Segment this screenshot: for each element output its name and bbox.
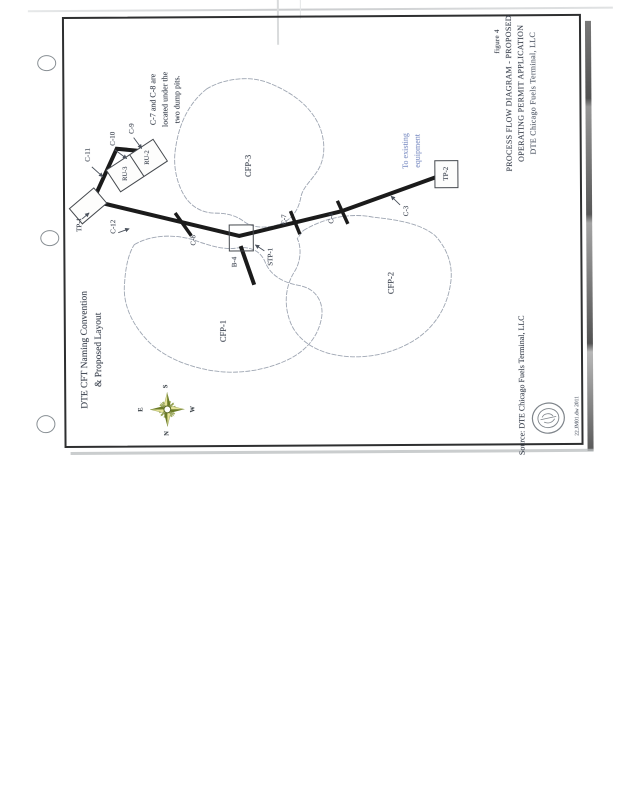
area-cfp3-outline <box>174 78 324 227</box>
pipe-main-c12-c3 <box>97 177 437 237</box>
label-c10: C-10 <box>107 132 119 146</box>
label-ru2: RU-2 <box>142 150 154 165</box>
title-line-3: DTE Chicago Fuels Terminal, LLC <box>527 15 540 171</box>
label-c7: C-7 <box>278 214 290 225</box>
margin-note-text: 22.JM01.dw 2011 <box>574 396 580 436</box>
label-c9: C-9 <box>126 123 138 134</box>
scanned-page: figure 4 PROCESS FLOW DIAGRAM - PROPOSED… <box>0 0 617 800</box>
arrow-stp1 <box>255 245 264 251</box>
source-attribution: Source: DTE Chicago Fuels Terminal, LLC <box>516 315 529 455</box>
note-line-2: located under the <box>159 72 171 127</box>
arrow-c12 <box>118 229 129 233</box>
to-existing-equipment-note: To existing equipment <box>400 133 424 169</box>
label-cfp3: CFP-3 <box>242 155 254 177</box>
label-tp1: TP-1 <box>73 218 85 232</box>
title-line-1: PROCESS FLOW DIAGRAM - PROPOSED <box>503 15 516 171</box>
title-block: PROCESS FLOW DIAGRAM - PROPOSED OPERATIN… <box>503 15 540 172</box>
note-line-1: C-7 and C-8 are <box>147 72 159 127</box>
scan-content: figure 4 PROCESS FLOW DIAGRAM - PROPOSED… <box>0 0 617 800</box>
label-c12: C-12 <box>107 220 119 234</box>
label-stp1: STP-1 <box>264 248 276 266</box>
label-c11: C-11 <box>82 148 94 162</box>
compass-label-left: E <box>135 407 147 411</box>
legend-line-2: & Proposed Layout <box>92 291 107 409</box>
compass-points <box>150 392 184 426</box>
note-line-3: two dump pits. <box>171 72 183 127</box>
area-cfp2-outline <box>286 215 452 357</box>
compass-rose <box>150 392 184 426</box>
label-ru3: RU-3 <box>120 166 132 181</box>
annotation-line-1: To existing <box>400 133 412 169</box>
label-c4: C-4 <box>325 213 337 224</box>
seal-stamp <box>530 400 568 436</box>
legend-line-1: DTE CFT Naming Convention <box>78 291 93 409</box>
compass-label-top: S <box>160 385 172 389</box>
compass-label-right: W <box>187 406 199 413</box>
pipe-b4 <box>241 248 253 283</box>
label-b4: B-4 <box>228 257 240 268</box>
label-tp2: TP-2 <box>440 167 452 181</box>
label-cfp2: CFP-2 <box>384 272 396 294</box>
annotation-line-2: equipment <box>412 133 424 169</box>
label-cfp1: CFP-1 <box>217 320 229 342</box>
label-c8: C-8 <box>187 235 199 246</box>
title-line-2: OPERATING PERMIT APPLICATION <box>515 15 528 171</box>
legend-title: DTE CFT Naming Convention & Proposed Lay… <box>78 291 107 409</box>
arrow-c3 <box>391 196 400 205</box>
area-cfp1-outline <box>124 235 322 373</box>
figure-number: figure 4 <box>491 29 503 53</box>
compass-label-bottom: N <box>161 431 173 436</box>
label-c3: C-3 <box>400 206 412 217</box>
dump-pits-note: C-7 and C-8 are located under the two du… <box>147 72 183 127</box>
arrow-c11 <box>92 167 103 177</box>
arrow-c9 <box>134 138 142 149</box>
